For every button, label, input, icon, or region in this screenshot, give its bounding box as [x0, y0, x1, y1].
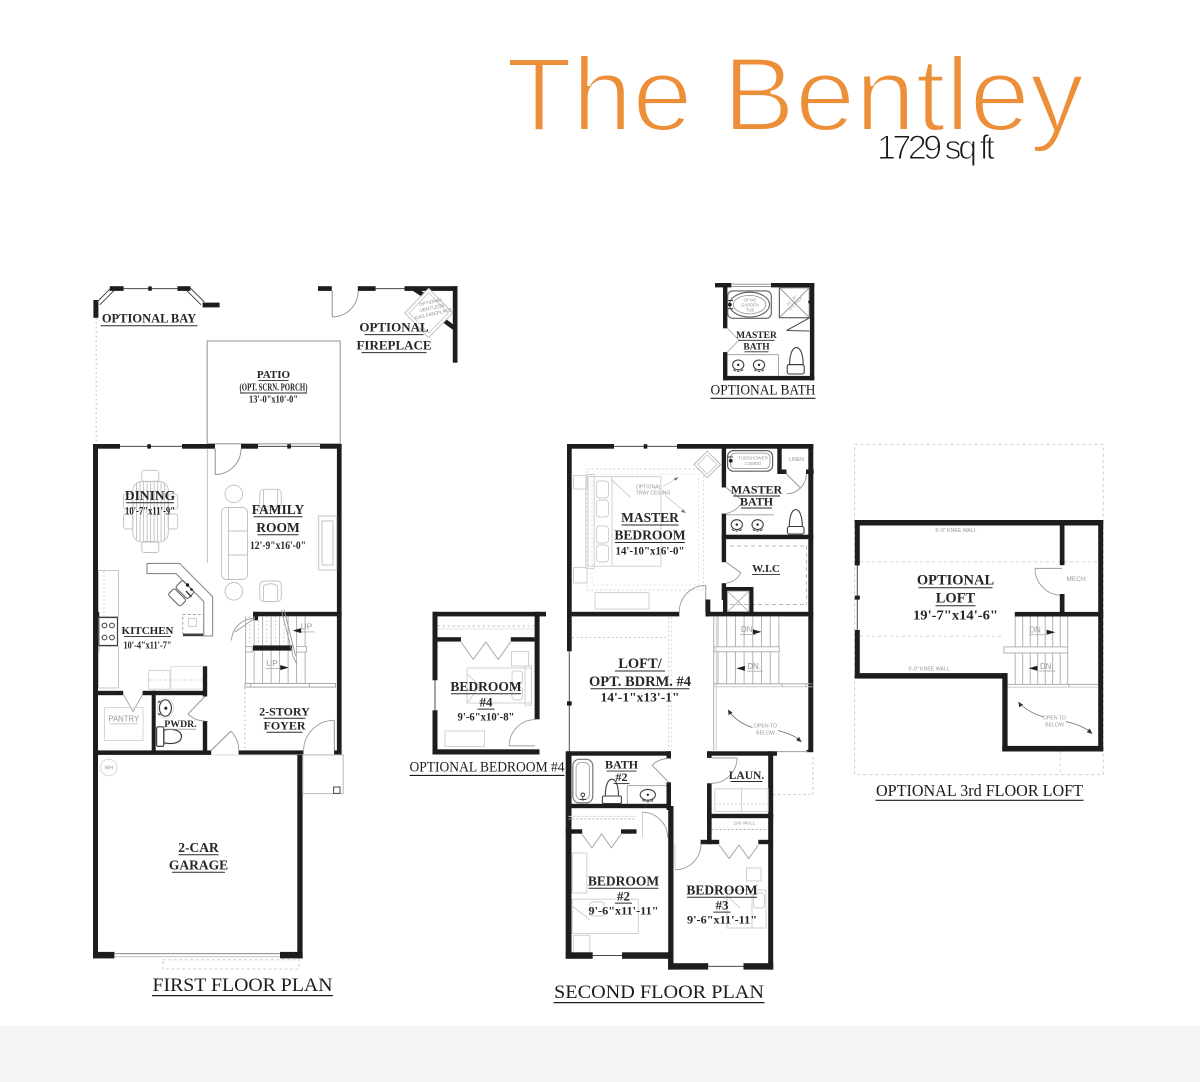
svg-text:(OPT. SCRN. PORCH): (OPT. SCRN. PORCH) [240, 383, 308, 394]
svg-text:WH: WH [105, 766, 114, 772]
svg-text:9'-6"x11'-11": 9'-6"x11'-11" [589, 906, 659, 918]
svg-text:OPTIONAL: OPTIONAL [359, 320, 429, 335]
svg-text:COMBO: COMBO [745, 461, 762, 466]
svg-text:ROOM: ROOM [256, 520, 300, 535]
svg-text:MASTER: MASTER [736, 331, 777, 341]
svg-text:DN.: DN. [748, 662, 761, 671]
svg-text:2-STORY: 2-STORY [259, 705, 310, 719]
svg-text:13'-0"x10'-0": 13'-0"x10'-0" [249, 395, 298, 406]
svg-text:5'-0" KNEE WALL: 5'-0" KNEE WALL [935, 528, 976, 534]
svg-text:#4: #4 [480, 695, 494, 710]
svg-text:TUB/SHOWER: TUB/SHOWER [738, 456, 768, 461]
svg-text:2-CAR: 2-CAR [178, 840, 219, 855]
svg-text:#2: #2 [616, 770, 628, 784]
svg-text:DN: DN [741, 625, 752, 634]
svg-text:The Bentley: The Bentley [506, 37, 1085, 154]
svg-text:OPTIONAL BATH: OPTIONAL BATH [711, 383, 816, 399]
svg-text:MASTER: MASTER [621, 510, 679, 525]
svg-text:LINEN: LINEN [789, 457, 804, 463]
svg-text:OPTIONAL: OPTIONAL [917, 573, 995, 589]
svg-text:PATIO: PATIO [257, 369, 291, 381]
svg-text:BELOW: BELOW [756, 731, 775, 737]
svg-text:BATH: BATH [743, 343, 770, 353]
svg-text:BEDROOM: BEDROOM [588, 874, 660, 889]
svg-text:10'-4"x11'-7": 10'-4"x11'-7" [124, 641, 172, 652]
svg-text:5'-0" KNEE WALL: 5'-0" KNEE WALL [908, 667, 949, 673]
svg-text:OPEN TO: OPEN TO [1043, 716, 1066, 722]
svg-text:OPTIONAL BAY: OPTIONAL BAY [102, 312, 196, 326]
svg-text:1729 sq ft: 1729 sq ft [877, 129, 996, 167]
svg-text:9'-6"x10'-8": 9'-6"x10'-8" [458, 712, 515, 724]
svg-text:DN.: DN. [1040, 662, 1053, 671]
svg-text:FIREPLACE: FIREPLACE [356, 338, 431, 353]
svg-text:OPT. BDRM. #4: OPT. BDRM. #4 [589, 674, 691, 690]
svg-text:14'-1"x13'-1": 14'-1"x13'-1" [601, 691, 680, 705]
svg-text:FIRST FLOOR PLAN: FIRST FLOOR PLAN [153, 976, 333, 996]
svg-text:BEDROOM: BEDROOM [614, 528, 686, 543]
svg-text:#3: #3 [716, 898, 730, 913]
svg-text:12'-9"x16'-0": 12'-9"x16'-0" [250, 538, 306, 552]
svg-text:BELOW: BELOW [1045, 723, 1064, 729]
svg-text:OPTIONAL 3rd FLOOR LOFT: OPTIONAL 3rd FLOOR LOFT [876, 781, 1083, 800]
svg-text:GARAGE: GARAGE [169, 858, 228, 873]
svg-text:OPEN TO: OPEN TO [754, 724, 777, 730]
svg-text:#2: #2 [617, 889, 630, 904]
svg-text:DINING: DINING [125, 488, 176, 503]
svg-text:SECOND FLOOR PLAN: SECOND FLOOR PLAN [554, 983, 764, 1003]
svg-text:MECH.: MECH. [1067, 576, 1088, 583]
svg-text:LAUN.: LAUN. [729, 770, 765, 782]
svg-text:W.I.C: W.I.C [752, 563, 780, 575]
svg-text:FAMILY: FAMILY [252, 502, 305, 517]
svg-text:10'-7"x11'-9": 10'-7"x11'-9" [125, 504, 175, 518]
svg-text:LOFT: LOFT [936, 591, 976, 607]
svg-text:UP: UP [301, 623, 313, 632]
svg-text:2x6 WALL: 2x6 WALL [734, 821, 756, 827]
svg-text:DN: DN [1030, 626, 1041, 635]
svg-text:PANTRY: PANTRY [108, 715, 140, 724]
svg-text:LOFT/: LOFT/ [618, 656, 662, 672]
svg-text:14'-10"x16'-0": 14'-10"x16'-0" [616, 544, 685, 558]
svg-text:BEDROOM: BEDROOM [450, 679, 522, 694]
svg-text:UP: UP [266, 659, 278, 668]
svg-text:PWDR.: PWDR. [164, 719, 197, 730]
svg-text:BEDROOM: BEDROOM [686, 883, 758, 898]
svg-text:9'-6"x11'-11": 9'-6"x11'-11" [687, 915, 757, 927]
svg-text:KITCHEN: KITCHEN [122, 625, 174, 637]
svg-text:BATH: BATH [740, 495, 774, 509]
svg-text:TUB: TUB [746, 308, 755, 313]
svg-text:19'-7"x14'-6": 19'-7"x14'-6" [913, 608, 998, 623]
svg-text:OPTIONAL BEDROOM #4: OPTIONAL BEDROOM #4 [410, 760, 565, 776]
svg-text:FOYER: FOYER [264, 719, 306, 733]
